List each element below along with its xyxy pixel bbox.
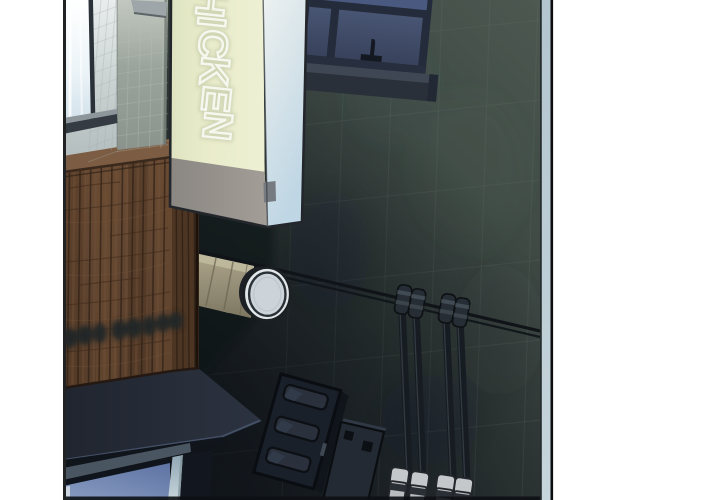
svg-text:N: N: [194, 109, 241, 142]
